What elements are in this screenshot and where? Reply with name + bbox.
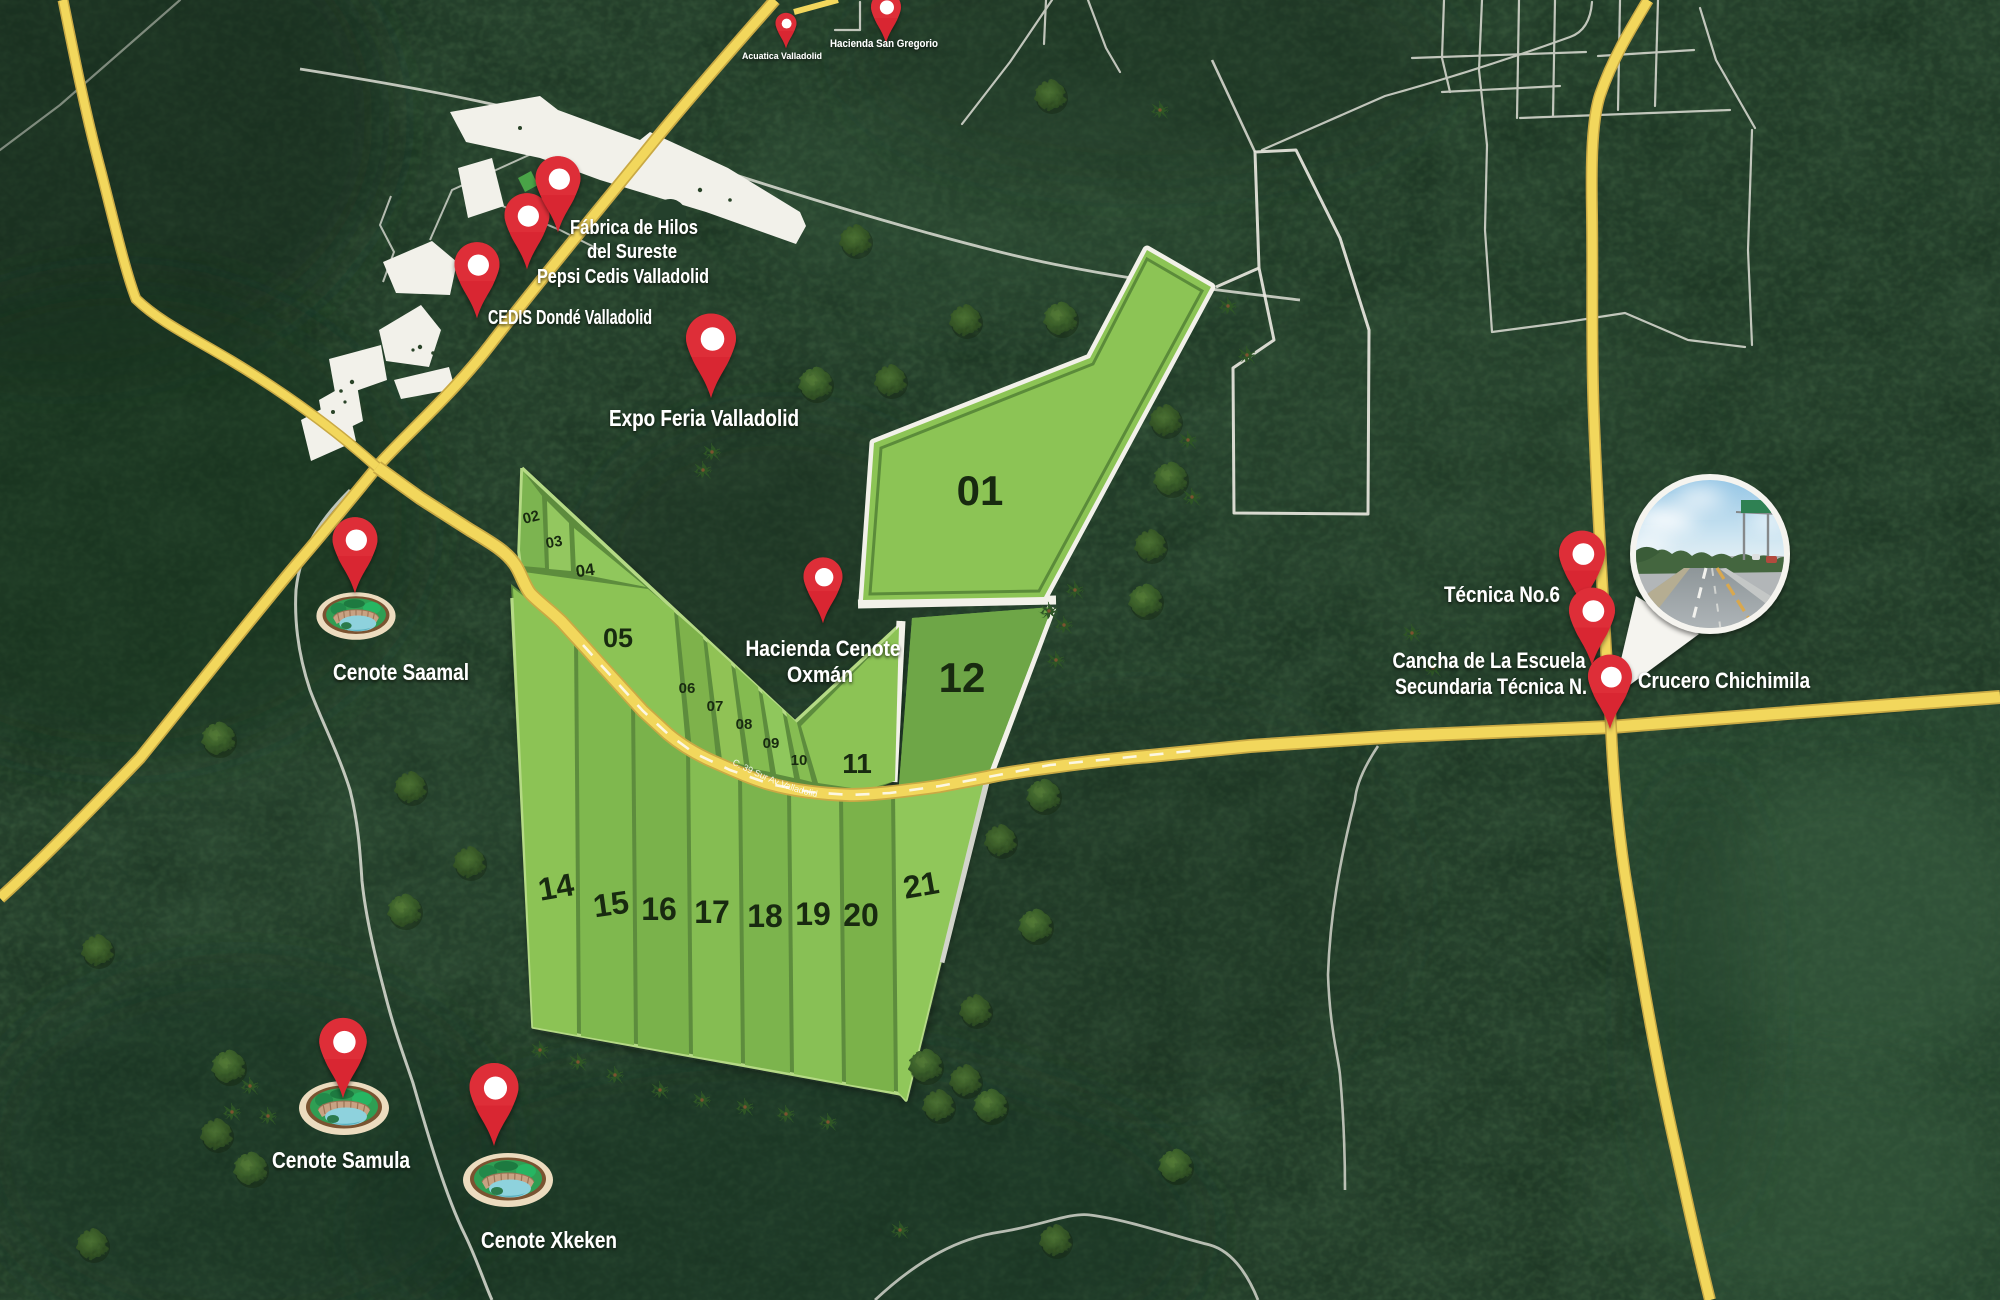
svg-text:05: 05 bbox=[603, 623, 633, 653]
svg-text:del Sureste: del Sureste bbox=[587, 241, 677, 263]
svg-text:15: 15 bbox=[591, 884, 631, 925]
svg-text:Técnica No.6: Técnica No.6 bbox=[1444, 582, 1560, 607]
svg-text:Cancha de La Escuela: Cancha de La Escuela bbox=[1393, 648, 1587, 673]
svg-text:Expo Feria Valladolid: Expo Feria Valladolid bbox=[609, 405, 799, 431]
svg-text:07: 07 bbox=[707, 698, 724, 715]
svg-text:01: 01 bbox=[957, 467, 1004, 514]
svg-text:Crucero Chichimila: Crucero Chichimila bbox=[1638, 668, 1811, 693]
svg-text:20: 20 bbox=[843, 897, 879, 933]
svg-text:Fábrica de Hilos: Fábrica de Hilos bbox=[570, 217, 698, 239]
svg-text:Acuatica Valladolid: Acuatica Valladolid bbox=[742, 51, 822, 62]
svg-text:12: 12 bbox=[939, 654, 986, 701]
svg-text:08: 08 bbox=[736, 716, 753, 733]
svg-text:14: 14 bbox=[535, 866, 577, 908]
svg-text:19: 19 bbox=[795, 896, 831, 932]
svg-text:Pepsi Cedis Valladolid: Pepsi Cedis Valladolid bbox=[537, 266, 709, 288]
svg-text:Oxmán: Oxmán bbox=[787, 662, 853, 687]
svg-text:Cenote Samula: Cenote Samula bbox=[272, 1147, 410, 1173]
svg-text:21: 21 bbox=[900, 864, 941, 906]
svg-text:Hacienda Cenote: Hacienda Cenote bbox=[746, 636, 901, 661]
svg-text:16: 16 bbox=[641, 891, 677, 927]
svg-text:10: 10 bbox=[791, 752, 808, 769]
svg-text:06: 06 bbox=[679, 680, 696, 697]
svg-text:18: 18 bbox=[747, 898, 783, 934]
svg-text:Cenote Saamal: Cenote Saamal bbox=[333, 659, 469, 685]
svg-text:11: 11 bbox=[842, 748, 872, 779]
svg-text:CEDIS Dondé Valladolid: CEDIS Dondé Valladolid bbox=[488, 307, 652, 329]
svg-text:Hacienda San Gregorio: Hacienda San Gregorio bbox=[830, 38, 938, 50]
svg-text:04: 04 bbox=[574, 560, 596, 582]
svg-text:Cenote Xkeken: Cenote Xkeken bbox=[481, 1227, 617, 1253]
svg-text:09: 09 bbox=[763, 735, 780, 752]
svg-text:03: 03 bbox=[544, 533, 563, 553]
svg-text:Secundaria Técnica N.: Secundaria Técnica N. bbox=[1395, 674, 1587, 699]
svg-text:17: 17 bbox=[694, 894, 730, 930]
